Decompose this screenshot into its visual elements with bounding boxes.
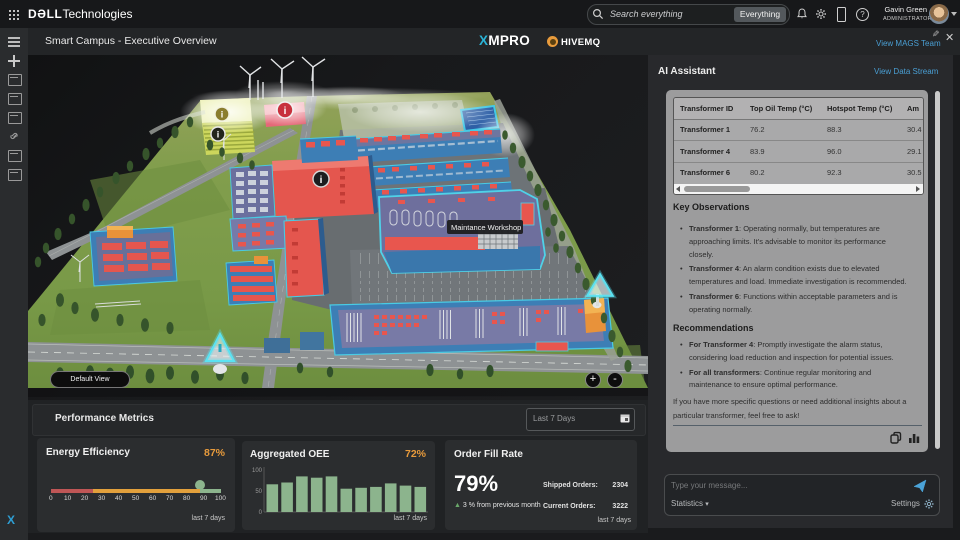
svg-text:i: i (221, 110, 224, 120)
svg-text:50: 50 (255, 489, 262, 495)
svg-text:100: 100 (252, 468, 263, 474)
svg-text:i: i (320, 175, 323, 186)
svg-text:i: i (284, 106, 287, 117)
svg-text:0: 0 (259, 510, 263, 516)
svg-text:i: i (217, 130, 220, 140)
svg-text:Maintance Workshop: Maintance Workshop (451, 223, 521, 232)
